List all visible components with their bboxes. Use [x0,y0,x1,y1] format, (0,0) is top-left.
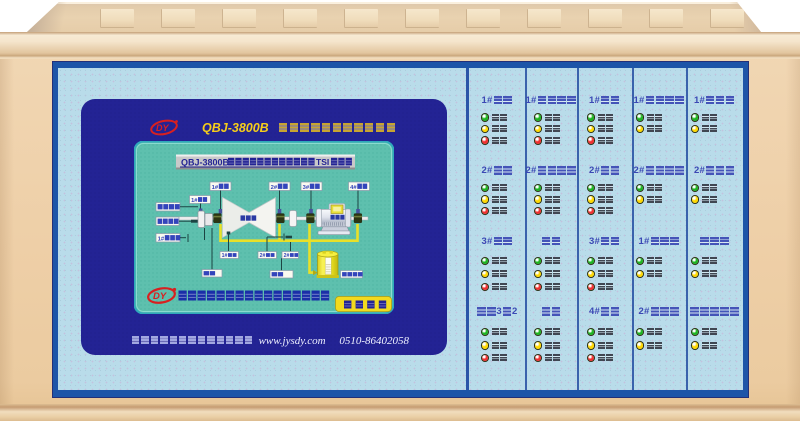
svg-text:3#: 3# [303,185,310,191]
svg-text:1#: 1# [158,236,165,242]
svg-text:1#: 1# [212,185,219,191]
svg-text:2#: 2# [284,253,290,259]
svg-text:2#: 2# [260,253,266,259]
svg-text:1#: 1# [222,253,228,259]
svg-text:4#: 4# [350,185,357,191]
svg-text:1#: 1# [191,198,198,204]
svg-text:DY: DY [156,123,169,133]
svg-text:QBJ-3800B: QBJ-3800B [181,158,230,168]
svg-text:DY: DY [153,291,168,302]
svg-text:2#: 2# [271,185,278,191]
svg-text:TSI: TSI [316,157,329,167]
